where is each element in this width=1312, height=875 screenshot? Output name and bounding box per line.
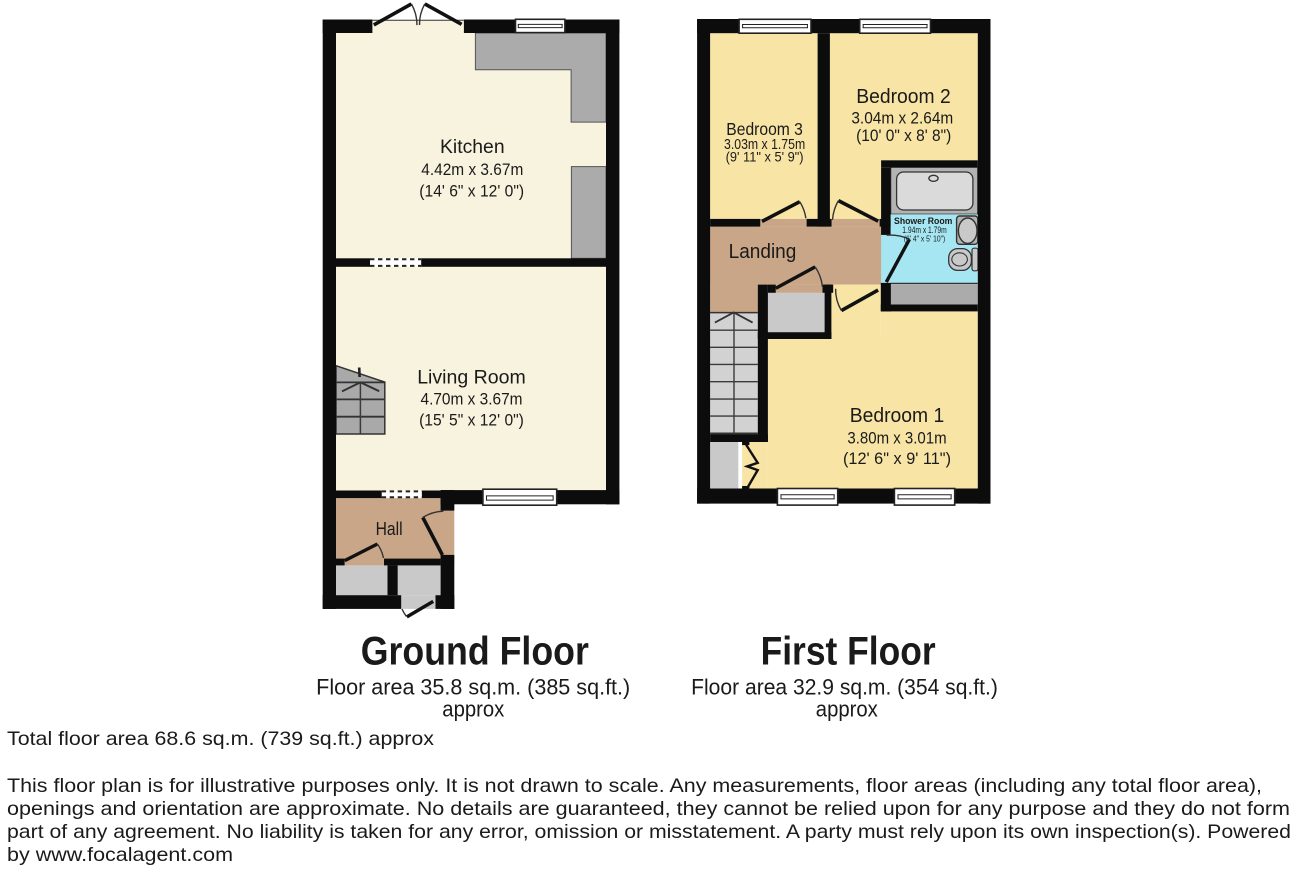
svg-text:(6' 4" x 5' 10"): (6' 4" x 5' 10") — [904, 234, 946, 244]
svg-text:3.80m x 3.01m: 3.80m x 3.01m — [847, 429, 946, 448]
svg-text:(10' 0" x 8' 8"): (10' 0" x 8' 8") — [856, 126, 951, 145]
svg-text:(12' 6" x 9' 11"): (12' 6" x 9' 11") — [843, 449, 951, 468]
svg-text:(14' 6" x 12' 0"): (14' 6" x 12' 0") — [419, 183, 524, 201]
svg-text:Bedroom 1: Bedroom 1 — [850, 405, 945, 427]
svg-text:(9' 11" x 5' 9"): (9' 11" x 5' 9") — [726, 150, 804, 165]
svg-text:Ground Floor: Ground Floor — [361, 630, 589, 674]
svg-text:by www.focalagent.com: by www.focalagent.com — [7, 844, 233, 866]
svg-text:openings and orientation are a: openings and orientation are approximate… — [7, 798, 1290, 820]
svg-text:Landing: Landing — [729, 241, 797, 263]
svg-text:Kitchen: Kitchen — [440, 136, 505, 158]
svg-text:4.42m x 3.67m: 4.42m x 3.67m — [421, 161, 523, 179]
svg-text:This floor plan is for illustr: This floor plan is for illustrative purp… — [7, 775, 1262, 797]
svg-text:Bedroom 3: Bedroom 3 — [726, 119, 803, 139]
svg-text:4.70m x 3.67m: 4.70m x 3.67m — [421, 391, 523, 409]
svg-text:(15' 5" x 12' 0"): (15' 5" x 12' 0") — [419, 412, 524, 430]
svg-text:part of any agreement. No liab: part of any agreement. No liability is t… — [7, 821, 1291, 843]
svg-text:Hall: Hall — [376, 519, 403, 539]
svg-text:Total floor area 68.6 sq.m. (7: Total floor area 68.6 sq.m. (739 sq.ft.)… — [7, 728, 434, 750]
svg-text:First Floor: First Floor — [761, 630, 936, 674]
svg-text:3.04m x 2.64m: 3.04m x 2.64m — [851, 108, 953, 127]
svg-text:approx: approx — [816, 697, 878, 722]
svg-text:approx: approx — [442, 697, 504, 722]
svg-text:Living Room: Living Room — [417, 367, 526, 389]
svg-text:Bedroom 2: Bedroom 2 — [856, 86, 951, 108]
